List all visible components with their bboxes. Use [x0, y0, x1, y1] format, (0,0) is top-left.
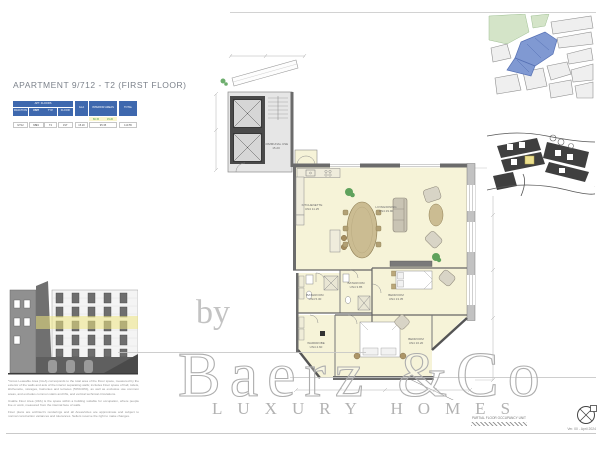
- svg-text:UN4 5.30: UN4 5.30: [309, 297, 322, 301]
- disclaimer-paragraph: *Gross Leasable Area (GLA) corresponds t…: [8, 379, 139, 396]
- bed-double: [392, 271, 433, 289]
- communal-core: [228, 92, 294, 172]
- page-title: APARTMENT 9/712 - T2 (FIRST FLOOR): [13, 80, 187, 90]
- col-header-fraction: FRACTION: [13, 108, 28, 116]
- table-group-header: APT. FLOORS: [13, 101, 73, 107]
- interior-split-value: 15.20: [103, 117, 117, 122]
- bottom-frame-line: [6, 433, 596, 434]
- col-header-total: TOTAL: [119, 101, 137, 116]
- svg-text:UN4 29.90: UN4 29.90: [379, 209, 394, 213]
- value-typ: T2: [44, 122, 57, 128]
- north-compass-icon: [576, 404, 598, 426]
- svg-text:15.20: 15.20: [272, 146, 280, 150]
- col-header-unit: UNIT: [29, 108, 44, 116]
- pillow: [398, 281, 404, 288]
- col-header-floor: FLOOR: [58, 108, 74, 116]
- site-plan-map: [487, 128, 595, 196]
- value-total: 110.55: [119, 122, 137, 128]
- value-floor: 1ST: [58, 122, 74, 128]
- elevator-icon: [234, 134, 262, 162]
- fridge-icon: [296, 215, 304, 225]
- sofa: [393, 198, 407, 232]
- toilet-icon: [345, 296, 350, 303]
- highlighted-unit: [525, 156, 534, 164]
- col-header-gla: GLA: [75, 101, 88, 116]
- value-gla: 15.20: [75, 122, 88, 128]
- value-interior: 95.35: [89, 122, 117, 128]
- disclaimer-text: *Gross Leasable Area (GLA) corresponds t…: [8, 379, 139, 421]
- building-elevation: [8, 278, 138, 378]
- elevator-icon: [234, 100, 262, 128]
- area-summary-table: APT. FLOORS FRACTION UNIT TYP. FLOOR GLA…: [13, 101, 137, 129]
- top-frame-line: [230, 12, 596, 13]
- occupancy-note-hatch: [471, 422, 527, 426]
- occupancy-note: PARTIAL FLOOR OCCUPANCY UNIT: [469, 416, 529, 420]
- location-map: [487, 14, 595, 100]
- nightstand: [392, 271, 396, 276]
- plant-icon: [221, 79, 228, 86]
- base-arches: [48, 360, 93, 373]
- pillow: [398, 273, 404, 280]
- sink-icon: [306, 275, 313, 284]
- floor-highlight-band: [36, 316, 138, 329]
- value-unit: UN4: [29, 122, 44, 128]
- svg-text:UN4 13.35: UN4 13.35: [389, 297, 404, 301]
- tv-cabinet: [390, 261, 432, 267]
- nightstand: [392, 284, 396, 289]
- value-fraction: 9/712: [13, 122, 28, 128]
- window: [467, 185, 475, 305]
- brochure-page: APARTMENT 9/712 - T2 (FIRST FLOOR) APT. …: [0, 0, 600, 450]
- disclaimer-paragraph: Usable Floor Area (UFA) is the space wit…: [8, 399, 139, 407]
- svg-text:UN4 3.85: UN4 3.85: [350, 285, 363, 289]
- version-label: Ver. 00 - April 2024: [550, 427, 596, 431]
- svg-text:UN4 11.25: UN4 11.25: [305, 207, 319, 211]
- disclaimer-paragraph: Floor plans are architect's renderings a…: [8, 410, 139, 418]
- col-header-interior: INTERIOR AREAS: [89, 101, 117, 116]
- ground-line: [8, 373, 138, 375]
- shower-drain: [320, 331, 325, 336]
- side-table: [429, 204, 443, 226]
- interior-split-value: 80.15: [89, 117, 103, 122]
- island-counter: [330, 230, 340, 252]
- watermark-by: by: [196, 294, 230, 332]
- stool-icon: [341, 235, 347, 241]
- col-header-typ: TYP.: [44, 108, 57, 116]
- roof-canopy: [232, 60, 298, 86]
